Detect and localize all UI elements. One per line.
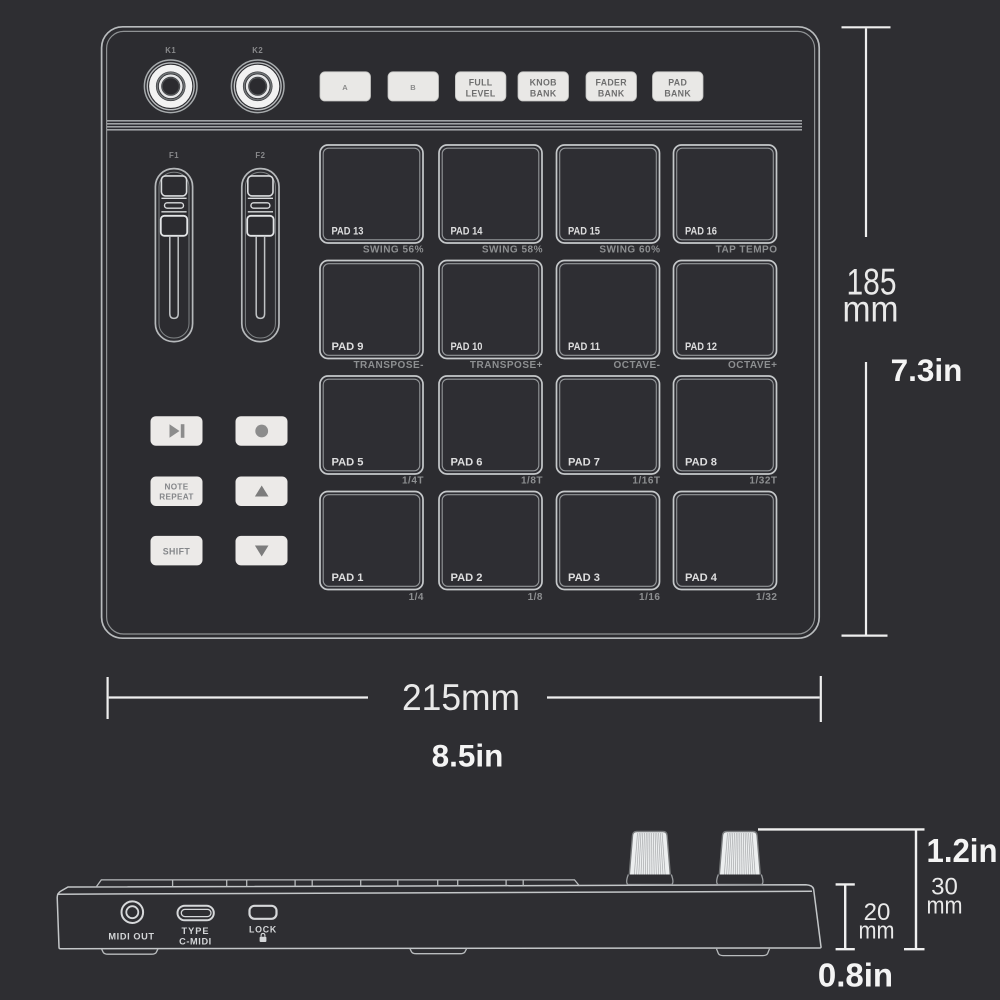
svg-text:REPEAT: REPEAT — [159, 493, 193, 502]
svg-text:B: B — [410, 83, 416, 92]
svg-text:C-MIDI: C-MIDI — [179, 937, 212, 947]
svg-text:PAD 12: PAD 12 — [685, 341, 717, 353]
svg-text:PAD: PAD — [668, 78, 687, 88]
svg-text:BANK: BANK — [530, 89, 557, 99]
svg-text:PAD 10: PAD 10 — [451, 341, 483, 353]
svg-text:SWING 58%: SWING 58% — [482, 245, 543, 256]
svg-text:mm: mm — [843, 288, 899, 330]
svg-text:PAD 8: PAD 8 — [685, 457, 717, 469]
svg-text:1/16: 1/16 — [639, 592, 660, 603]
svg-text:mm: mm — [859, 918, 895, 945]
svg-text:PAD 4: PAD 4 — [685, 572, 718, 584]
svg-text:K1: K1 — [165, 46, 176, 55]
svg-text:PAD 11: PAD 11 — [568, 341, 600, 353]
svg-text:1/4T: 1/4T — [402, 476, 424, 487]
svg-text:TAP TEMPO: TAP TEMPO — [716, 245, 778, 256]
svg-text:SWING 56%: SWING 56% — [363, 245, 424, 256]
svg-text:PAD 13: PAD 13 — [332, 226, 364, 238]
svg-text:PAD 14: PAD 14 — [451, 226, 484, 238]
svg-text:PAD 5: PAD 5 — [332, 457, 364, 469]
svg-text:LEVEL: LEVEL — [466, 89, 496, 99]
svg-text:PAD 2: PAD 2 — [451, 572, 483, 584]
svg-text:1/8T: 1/8T — [521, 476, 543, 487]
svg-text:0.8in: 0.8in — [818, 957, 893, 994]
svg-text:8.5in: 8.5in — [432, 738, 504, 774]
svg-text:PAD 15: PAD 15 — [568, 226, 600, 238]
svg-text:PAD 7: PAD 7 — [568, 457, 600, 469]
svg-text:A: A — [342, 83, 348, 92]
svg-text:TYPE: TYPE — [182, 926, 210, 936]
svg-text:1/32T: 1/32T — [749, 476, 777, 487]
svg-text:OCTAVE-: OCTAVE- — [613, 360, 660, 371]
svg-text:FADER: FADER — [596, 78, 628, 88]
svg-text:BANK: BANK — [598, 89, 625, 99]
svg-text:1/4: 1/4 — [409, 592, 424, 603]
svg-text:BANK: BANK — [664, 89, 691, 99]
svg-text:MIDI OUT: MIDI OUT — [108, 932, 154, 942]
svg-text:PAD 6: PAD 6 — [451, 457, 483, 469]
svg-text:KNOB: KNOB — [530, 78, 557, 88]
svg-text:1/8: 1/8 — [528, 592, 543, 603]
svg-text:PAD 3: PAD 3 — [568, 572, 600, 584]
svg-text:NOTE: NOTE — [165, 483, 189, 492]
svg-text:PAD 9: PAD 9 — [332, 341, 364, 353]
svg-text:PAD 1: PAD 1 — [332, 572, 364, 584]
svg-text:PAD 16: PAD 16 — [685, 226, 717, 238]
svg-text:1.2in: 1.2in — [927, 832, 998, 869]
svg-text:F2: F2 — [255, 151, 265, 160]
svg-text:TRANSPOSE-: TRANSPOSE- — [353, 360, 424, 371]
svg-text:TRANSPOSE+: TRANSPOSE+ — [470, 360, 543, 371]
svg-text:OCTAVE+: OCTAVE+ — [728, 360, 778, 371]
svg-text:SHIFT: SHIFT — [163, 547, 191, 557]
svg-text:1/32: 1/32 — [756, 592, 777, 603]
svg-text:215mm: 215mm — [402, 676, 520, 718]
svg-text:FULL: FULL — [469, 78, 493, 88]
svg-text:mm: mm — [927, 893, 963, 920]
svg-text:K2: K2 — [252, 46, 263, 55]
svg-text:F1: F1 — [169, 151, 179, 160]
svg-text:1/16T: 1/16T — [632, 476, 660, 487]
svg-text:7.3in: 7.3in — [891, 352, 963, 388]
svg-text:SWING 60%: SWING 60% — [599, 245, 660, 256]
